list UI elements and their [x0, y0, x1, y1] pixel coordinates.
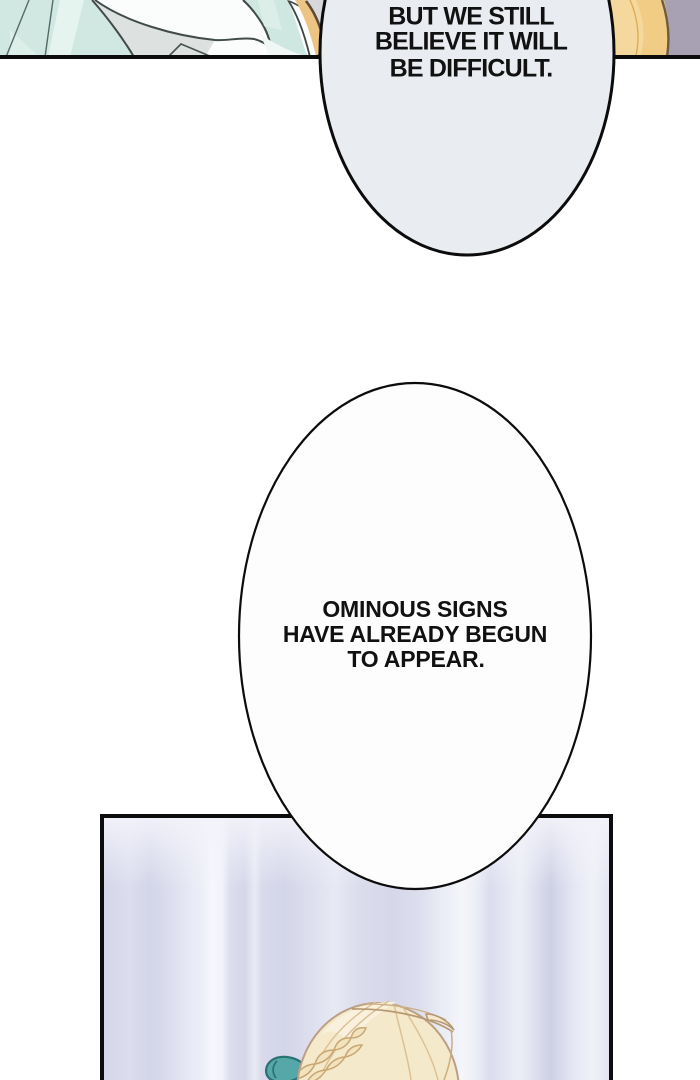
svg-text:BUT WE STILL: BUT WE STILL [388, 3, 554, 31]
svg-text:TO APPEAR.: TO APPEAR. [347, 646, 484, 672]
svg-text:HAVE ALREADY BEGUN: HAVE ALREADY BEGUN [283, 621, 547, 647]
svg-text:OMINOUS SIGNS: OMINOUS SIGNS [322, 596, 507, 622]
svg-text:BELIEVE IT WILL: BELIEVE IT WILL [375, 28, 568, 56]
svg-text:BE DIFFICULT.: BE DIFFICULT. [390, 55, 553, 83]
